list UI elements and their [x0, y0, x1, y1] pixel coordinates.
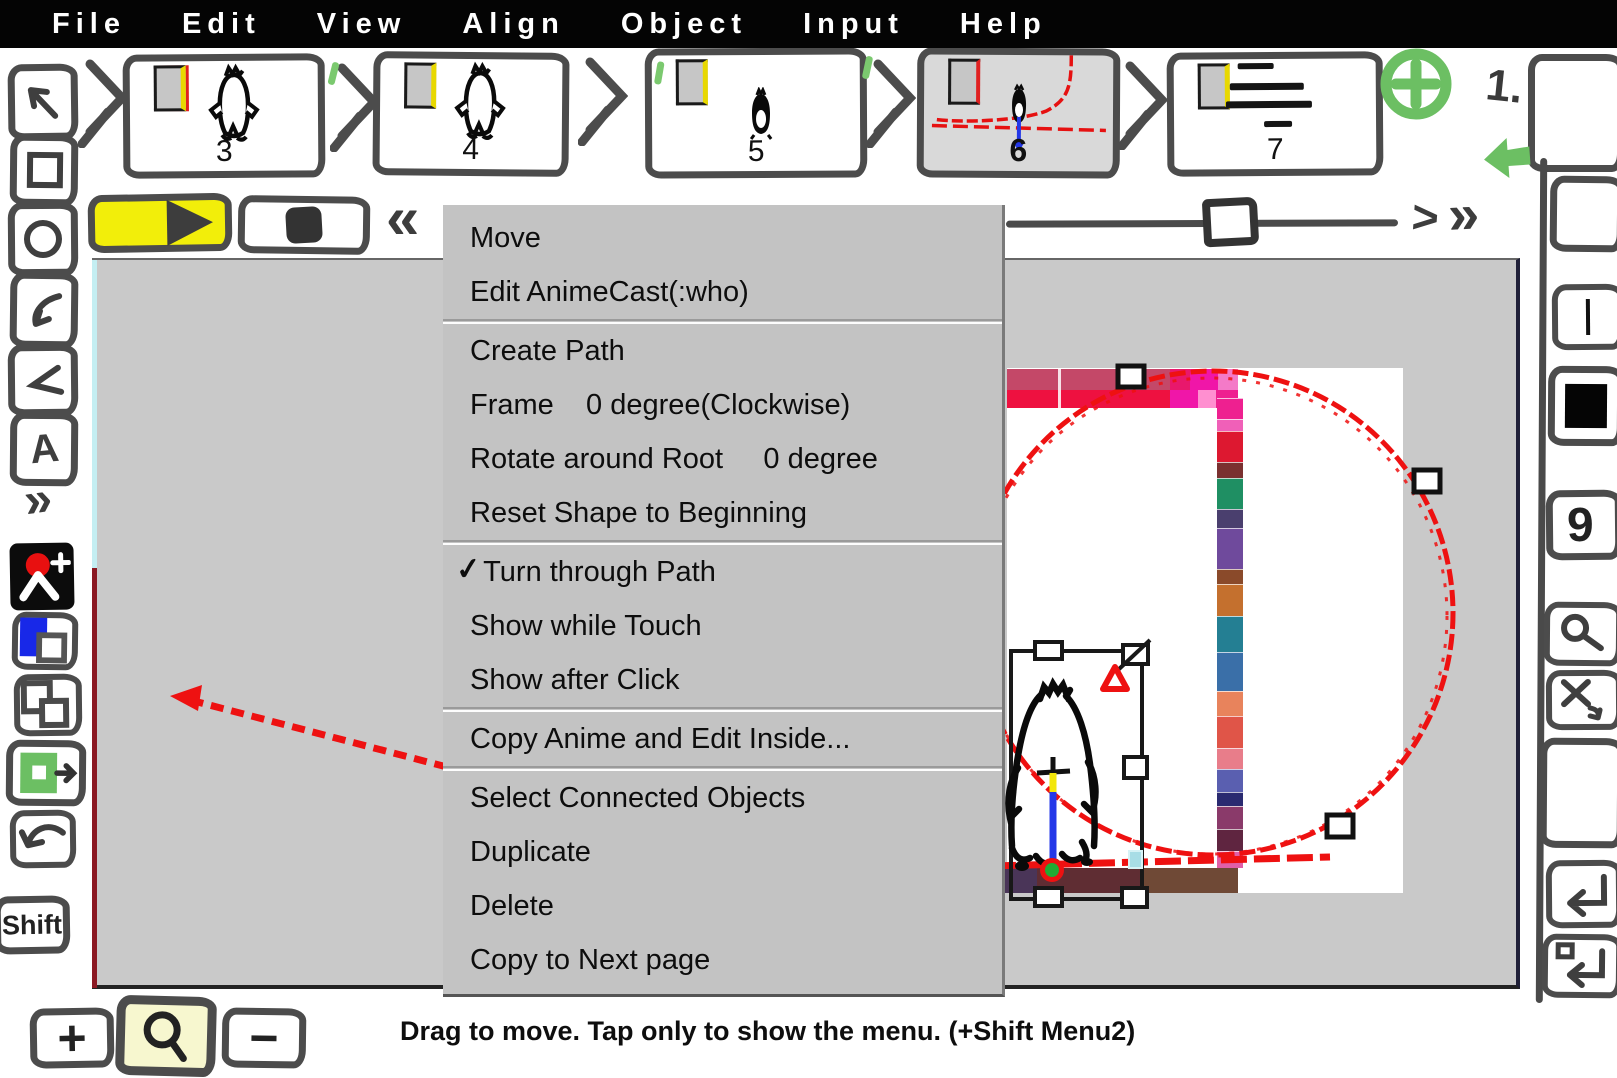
menu-item-copy-anime-edit-inside[interactable]: Copy Anime and Edit Inside...: [443, 712, 1002, 766]
return-page-tool-button[interactable]: [1542, 934, 1617, 999]
text-tool-icon: A: [27, 425, 60, 473]
frame-marker-green: [654, 61, 665, 85]
animecast-tool-button-selected[interactable]: [9, 542, 74, 610]
menu-view[interactable]: View: [317, 8, 407, 41]
frame-link-arrow: [1118, 54, 1168, 150]
menu-item-show-after-click[interactable]: Show after Click: [443, 653, 1002, 707]
frame-slider-handle[interactable]: [1202, 197, 1259, 248]
menu-item-create-path[interactable]: Create Path: [443, 324, 1002, 378]
menubar: File Edit View Align Object Input Help: [0, 0, 1617, 48]
right-tool-large-slot[interactable]: [1540, 738, 1617, 849]
group-objects-tool-button[interactable]: [14, 674, 83, 737]
menu-input[interactable]: Input: [803, 8, 904, 41]
color-band-top: [1007, 369, 1238, 408]
zoom-out-button[interactable]: −: [222, 1007, 307, 1068]
frame-tab-icon: [676, 59, 708, 105]
frame-thumbnail-7[interactable]: 7: [1167, 51, 1384, 177]
curve-pen-icon: [19, 286, 70, 335]
tiny-text-line: [1238, 63, 1274, 69]
menu-item-reset-shape[interactable]: Reset Shape to Beginning: [443, 486, 1002, 540]
bring-object-tool-button[interactable]: [12, 612, 79, 671]
menu-item-move[interactable]: Move: [443, 211, 1002, 265]
magnify-tool-button[interactable]: [1544, 602, 1617, 667]
frame-number: 4: [380, 132, 562, 168]
context-menu: Move Edit AnimeCast(:who) Create Path Fr…: [443, 205, 1005, 997]
menu-item-edit-animecast[interactable]: Edit AnimeCast(:who): [443, 265, 1002, 319]
menu-item-delete[interactable]: Delete: [443, 879, 1002, 933]
zoom-in-button[interactable]: +: [29, 1007, 114, 1068]
polyline-tool-button[interactable]: [8, 344, 79, 417]
menu-align[interactable]: Align: [462, 8, 565, 41]
black-swatch-icon: [1565, 384, 1607, 428]
delete-move-tool-button[interactable]: [1546, 670, 1617, 731]
artboard-page[interactable]: [1007, 368, 1403, 893]
menu-edit[interactable]: Edit: [182, 8, 261, 41]
rectangle-icon: [20, 146, 69, 195]
menu-file[interactable]: File: [52, 8, 126, 41]
menu-item-duplicate[interactable]: Duplicate: [443, 825, 1002, 879]
undo-tool-button[interactable]: [10, 810, 77, 869]
shift-label: Shift: [2, 909, 63, 941]
menu-item-copy-to-next-page[interactable]: Copy to Next page: [443, 933, 1002, 987]
x-arrow-icon: [1556, 676, 1612, 724]
line-width-icon: [1586, 299, 1590, 335]
add-frame-icon[interactable]: [1378, 48, 1456, 122]
return-tool-button[interactable]: [1546, 860, 1617, 929]
frame-tab-icon: [154, 65, 186, 111]
menu-item-rotate-around-root[interactable]: Rotate around Root 0 degree: [443, 432, 1002, 486]
frame-thumbnail-3[interactable]: 3: [123, 53, 326, 178]
prev-page-arrow-icon[interactable]: [1482, 134, 1534, 184]
checkmark-icon: ✓: [453, 542, 484, 598]
right-tool-empty-slot[interactable]: [1550, 176, 1617, 253]
magnifier-icon: [1555, 610, 1611, 658]
frame-number: 6: [924, 132, 1113, 170]
frame-tab-icon: [404, 62, 436, 108]
stop-icon: [285, 206, 323, 244]
play-icon: [167, 199, 214, 246]
circle-icon: [19, 215, 67, 263]
overlap-squares-icon: [20, 679, 77, 732]
frame-thumbnail-6-selected[interactable]: 6: [917, 47, 1121, 178]
app-window: File Edit View Align Object Input Help 3: [0, 0, 1617, 1078]
tiny-text-line: [1230, 83, 1304, 91]
menu-help[interactable]: Help: [960, 8, 1047, 41]
menu-item-frame-degree[interactable]: Frame 0 degree(Clockwise): [443, 378, 1002, 432]
pen-tool-button[interactable]: [10, 272, 79, 349]
next-frame-slot: [1528, 54, 1617, 172]
angle-value-button[interactable]: 9: [1546, 490, 1617, 561]
frame-number: 3: [130, 134, 318, 169]
stop-button[interactable]: [238, 195, 371, 255]
green-square-arrow-icon: [13, 747, 79, 800]
cursor-arrow-icon: [19, 78, 68, 127]
magnifier-icon: [137, 1007, 194, 1064]
menu-item-select-connected[interactable]: Select Connected Objects: [443, 771, 1002, 825]
page-indicator: 1.: [1483, 60, 1525, 114]
shift-modifier-button[interactable]: Shift: [0, 895, 71, 954]
canvas-edge-cyan: [92, 260, 97, 568]
return-arrow-square-icon: [1552, 941, 1613, 992]
color-band-bottom: [1005, 868, 1238, 893]
select-tool-button[interactable]: [7, 64, 78, 141]
insert-object-tool-button[interactable]: [6, 740, 87, 807]
next-frame-button[interactable]: >: [1410, 193, 1440, 241]
play-button[interactable]: [88, 193, 233, 254]
tiny-text-line: [1226, 101, 1312, 109]
menu-item-show-while-touch[interactable]: Show while Touch: [443, 599, 1002, 653]
color-band-vertical: [1217, 398, 1243, 868]
overlap-squares-blue-icon: [18, 617, 73, 666]
jump-first-frame-button[interactable]: «: [386, 188, 419, 248]
ellipse-tool-button[interactable]: [8, 202, 79, 277]
penguin-thumbnail-icon: [206, 63, 263, 143]
tiny-text-line: [1264, 121, 1292, 127]
frame-number: 7: [1174, 132, 1376, 167]
line-width-tool-button[interactable]: [1552, 284, 1617, 351]
penguin-thumbnail-icon: [452, 61, 509, 141]
status-message: Drag to move. Tap only to show the menu.…: [400, 1016, 1135, 1047]
magnifier-mode-button[interactable]: [115, 995, 217, 1078]
frame-link-arrow: [578, 50, 628, 146]
menu-object[interactable]: Object: [621, 8, 747, 41]
frame-thumbnail-4[interactable]: 4: [372, 51, 569, 177]
return-arrow-icon: [1554, 869, 1614, 920]
canvas-edge-red: [92, 568, 97, 988]
frame-thumbnail-5[interactable]: 5: [645, 47, 868, 178]
color-swatch-button[interactable]: [1548, 366, 1617, 447]
rectangle-tool-button[interactable]: [10, 134, 79, 207]
menu-item-turn-through-path[interactable]: ✓Turn through Path: [443, 545, 1002, 599]
frame-number: 5: [652, 134, 860, 169]
undo-arrow-icon: [17, 817, 70, 862]
frame-link-arrow: [78, 52, 128, 148]
jump-last-frame-button[interactable]: »: [1447, 185, 1481, 243]
animecast-icon: [12, 546, 71, 607]
angle-line-icon: [18, 356, 68, 405]
frame-link-arrow: [866, 52, 916, 148]
angle-value-label: 9: [1567, 497, 1594, 552]
